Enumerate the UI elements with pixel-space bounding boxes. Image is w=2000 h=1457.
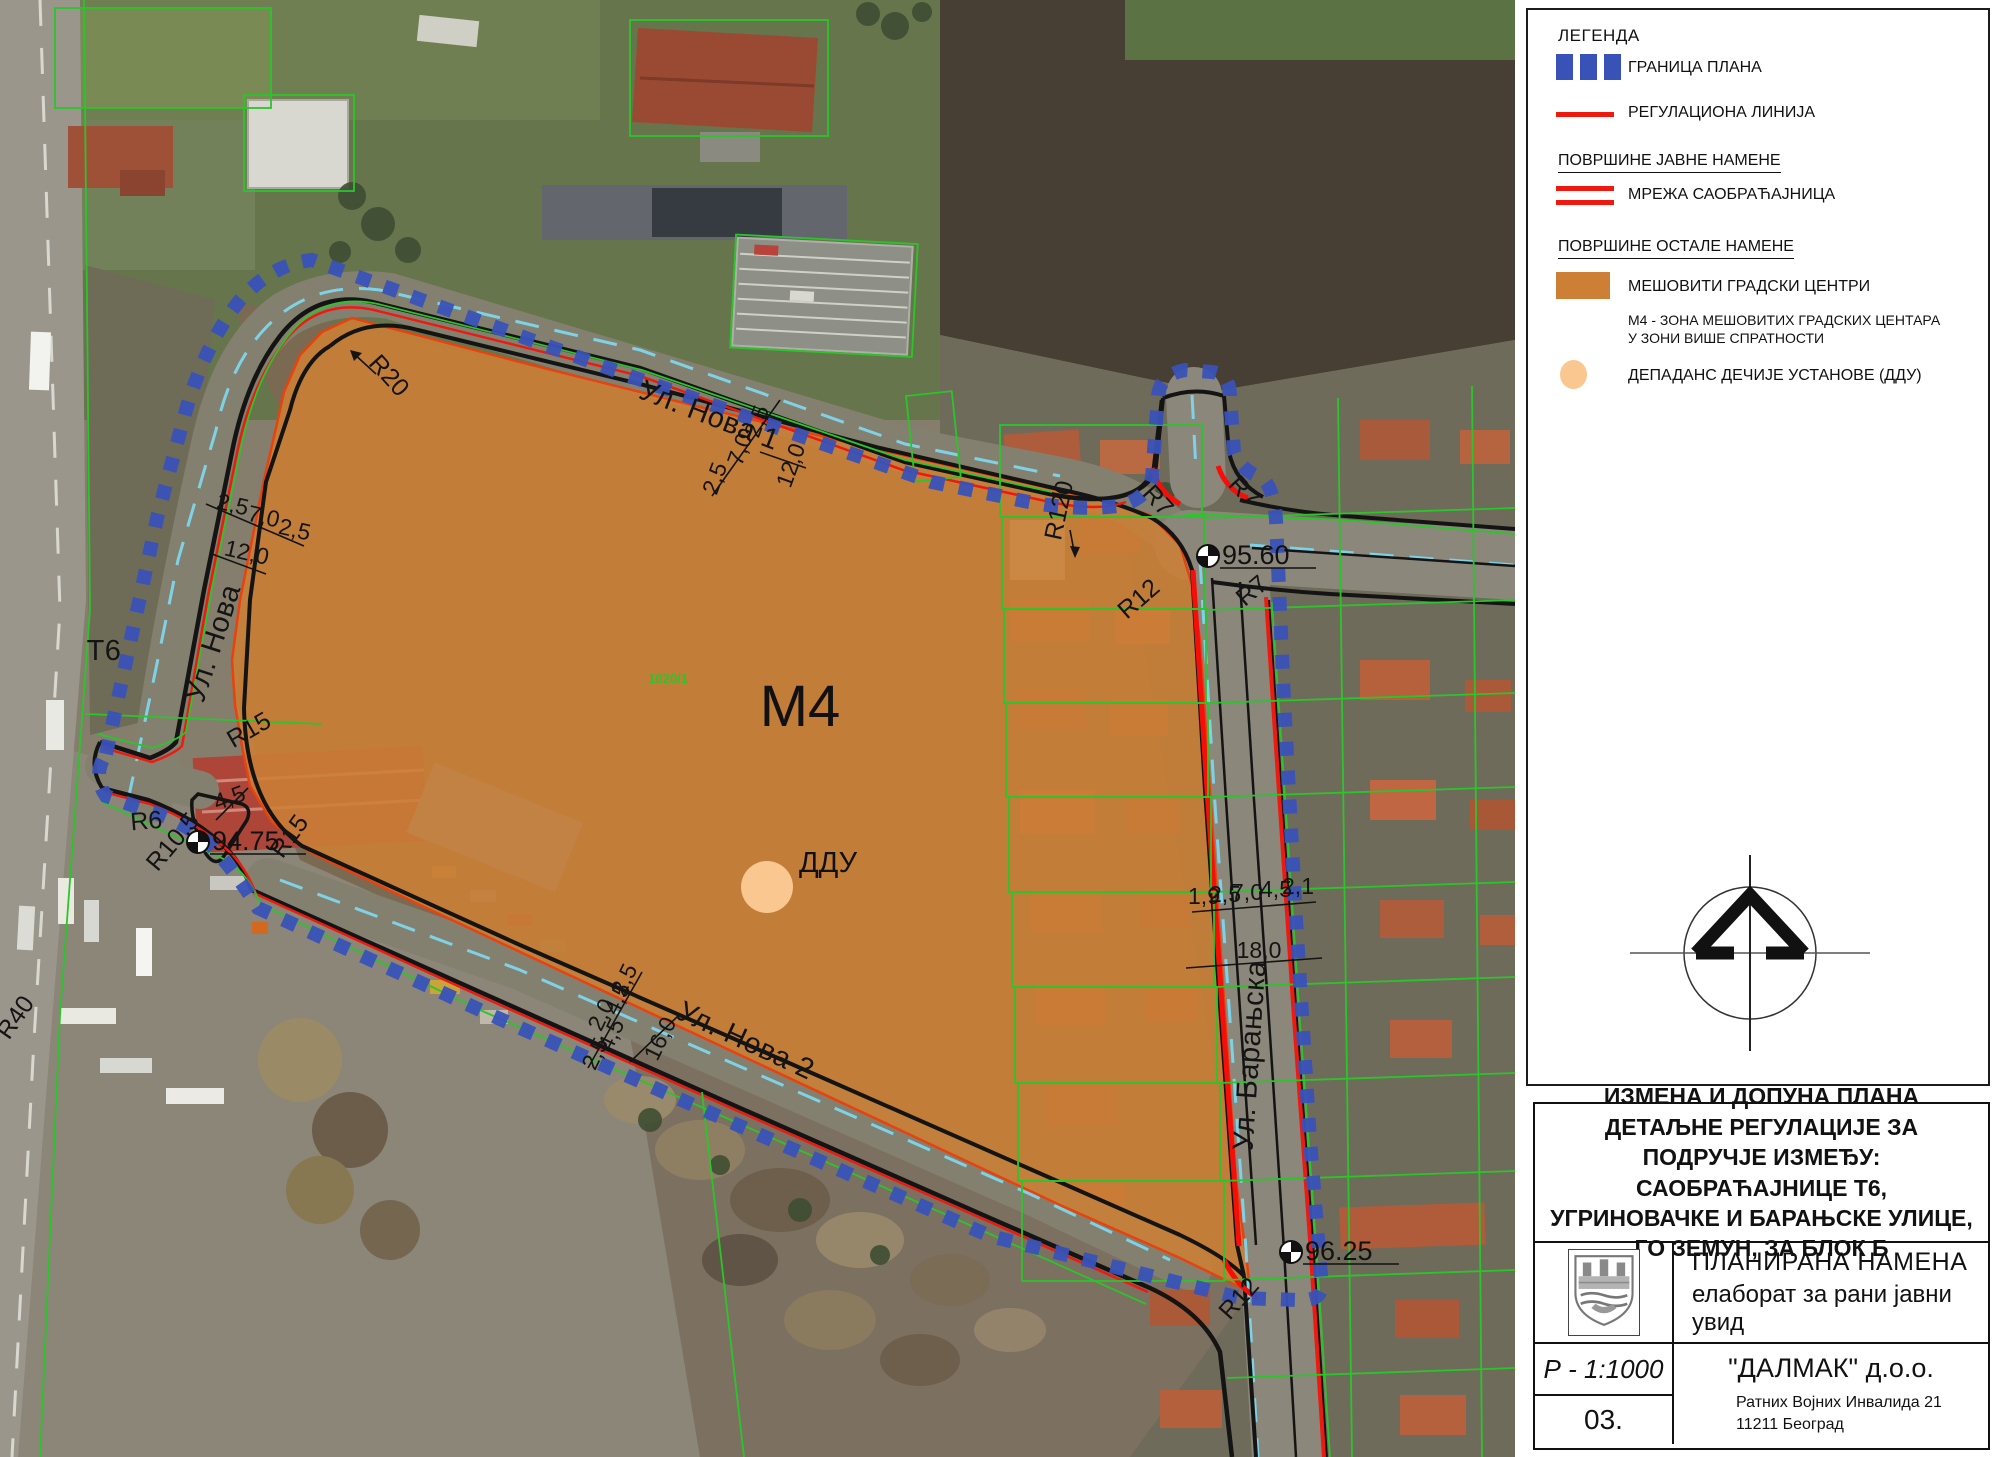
road-network-swatch-icon: [1556, 186, 1614, 191]
plan-boundary-swatch-icon: [1556, 54, 1573, 80]
dimension-label: 2,1: [1282, 873, 1314, 899]
company-name: "ДАЛМАК" д.о.о.: [1728, 1353, 1934, 1384]
elevation-value: 96.25: [1305, 1236, 1373, 1266]
legend-panel: ЛЕГЕНДА ГРАНИЦА ПЛАНА РЕГУЛАЦИОНА ЛИНИЈА…: [1526, 8, 1990, 1086]
radius-label: R6: [129, 806, 163, 837]
plan-map: Ул. НоваУл. Нова 1Ул. Нова 2Ул. Барањска…: [0, 0, 1515, 1457]
sheet-number: 03.: [1535, 1396, 1672, 1444]
scale-value: Р - 1:1000: [1535, 1344, 1672, 1396]
legend-label: ДЕПАДАНС ДЕЧИЈЕ УСТАНОВЕ (ДДУ): [1628, 367, 1922, 385]
road-network-swatch-icon: [1556, 200, 1614, 205]
legend-label: РЕГУЛАЦИОНА ЛИНИЈА: [1628, 104, 1815, 122]
legend-label: МЕШОВИТИ ГРАДСКИ ЦЕНТРИ: [1628, 278, 1870, 296]
ddu-label: ДДУ: [799, 847, 858, 879]
company-address-line1: Ратних Војних Инвалида 21: [1736, 1392, 1942, 1414]
legend-sublabel: М4 - ЗОНА МЕШОВИТИХ ГРАДСКИХ ЦЕНТАРА: [1628, 312, 1940, 328]
legend-label: МРЕЖА САОБРАЋАЈНИЦА: [1628, 186, 1835, 204]
regulation-line-swatch-icon: [1556, 112, 1614, 117]
ddu-swatch-icon: [1560, 360, 1587, 389]
drawing-subtitle: елаборат за рани јавни увид: [1692, 1281, 1988, 1337]
zone-m4-label: М4: [760, 674, 841, 739]
legend-heading: ПОВРШИНЕ ЈАВНЕ НАМЕНЕ: [1558, 152, 1781, 173]
legend-heading: ПОВРШИНЕ ОСТАЛЕ НАМЕНЕ: [1558, 238, 1794, 259]
plan-boundary-swatch-icon: [1580, 54, 1597, 80]
dimension-label: 18,0: [1237, 937, 1282, 963]
legend-label: ГРАНИЦА ПЛАНА: [1628, 59, 1762, 77]
elevation-value: 94.75: [212, 826, 280, 856]
elevation-value: 95.60: [1222, 540, 1290, 570]
company-address: Ратних Војних Инвалида 21 11211 Београд: [1674, 1392, 1942, 1435]
plan-boundary-swatch-icon: [1604, 54, 1621, 80]
dimension-label: 7,0: [1231, 879, 1263, 905]
north-arrow-icon: [1630, 833, 1870, 1063]
belgrade-coat-of-arms-icon: [1568, 1249, 1640, 1336]
emblem-cell: [1535, 1243, 1674, 1342]
company-address-line2: 11211 Београд: [1736, 1414, 1942, 1436]
legend-sublabel: У ЗОНИ ВИШЕ СПРАТНОСТИ: [1628, 330, 1824, 346]
title-block: ИЗМЕНА И ДОПУНА ПЛАНА ДЕТАЉНЕ РЕГУЛАЦИЈЕ…: [1533, 1102, 1990, 1450]
plan-title: ИЗМЕНА И ДОПУНА ПЛАНА ДЕТАЉНЕ РЕГУЛАЦИЈЕ…: [1535, 1104, 1988, 1243]
plan-sheet: Ул. НоваУл. Нова 1Ул. Нова 2Ул. Барањска…: [0, 0, 2000, 1457]
parcel-label: 1020/1: [648, 671, 688, 686]
drawing-name: ПЛАНИРАНА НАМЕНА: [1692, 1248, 1988, 1277]
ddu-point: [741, 861, 793, 913]
legend-title: ЛЕГЕНДА: [1558, 26, 1640, 46]
mixed-centers-swatch-icon: [1556, 272, 1610, 299]
street-label: Т6: [87, 635, 122, 667]
